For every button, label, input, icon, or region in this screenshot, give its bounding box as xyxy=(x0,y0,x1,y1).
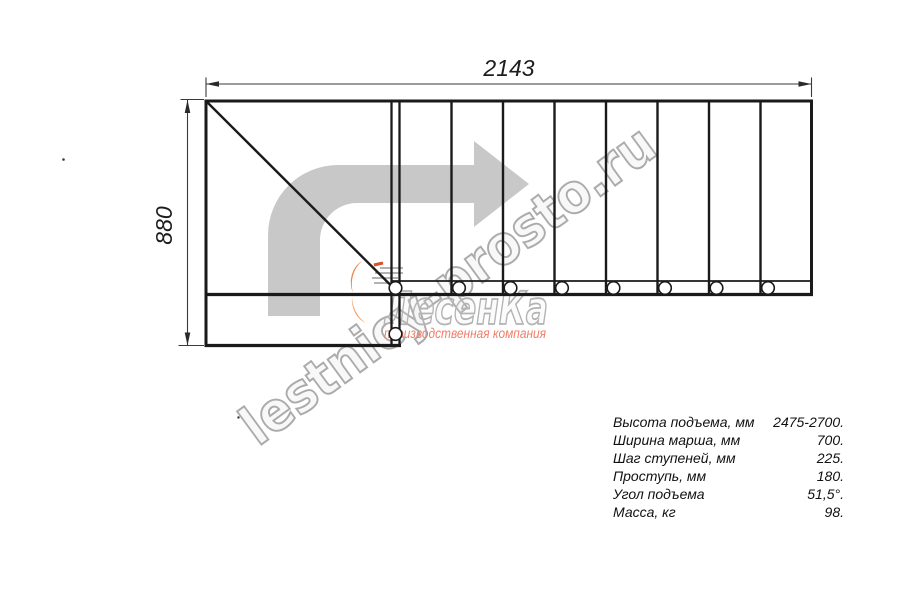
dimension-width: 2143 xyxy=(206,55,812,97)
spec-label: Ширина марша, мм xyxy=(613,431,740,449)
spec-row: Высота подъема, мм 2475-2700. xyxy=(613,413,844,431)
spec-value: 2475-2700. xyxy=(773,413,844,431)
staircase-drawing-page: lestnicy-prosto.ru ЛесенКа производствен… xyxy=(0,0,900,600)
width-dimension-label: 2143 xyxy=(482,55,534,81)
dimension-height: 880 xyxy=(151,100,204,346)
spec-value: 180. xyxy=(817,467,844,485)
spec-label: Масса, кг xyxy=(613,503,676,521)
spec-row: Масса, кг 98. xyxy=(613,503,844,521)
specs-table: Высота подъема, мм 2475-2700. Ширина мар… xyxy=(613,413,844,521)
dim-arrow-right-icon xyxy=(799,81,812,87)
height-dimension-label: 880 xyxy=(151,206,177,245)
spec-row: Шаг ступеней, мм 225. xyxy=(613,449,844,467)
spec-label: Высота подъема, мм xyxy=(613,413,755,431)
spec-label: Проступь, мм xyxy=(613,467,706,485)
spec-row: Ширина марша, мм 700. xyxy=(613,431,844,449)
spec-label: Угол подъема xyxy=(613,485,705,503)
print-specks xyxy=(62,158,240,419)
spec-value: 98. xyxy=(825,503,844,521)
spec-value: 700. xyxy=(817,431,844,449)
spec-value: 51,5°. xyxy=(807,485,844,503)
spec-value: 225. xyxy=(817,449,844,467)
spec-label: Шаг ступеней, мм xyxy=(613,449,736,467)
dim-arrow-up-icon xyxy=(185,100,191,113)
logo-company-subtitle: производственная компания xyxy=(384,326,546,341)
spec-row: Проступь, мм 180. xyxy=(613,467,844,485)
logo-flame-accent xyxy=(374,263,383,265)
dim-arrow-down-icon xyxy=(185,333,191,346)
dim-arrow-left-icon xyxy=(206,81,219,87)
spec-row: Угол подъема 51,5°. xyxy=(613,485,844,503)
logo-flame-icon xyxy=(351,261,362,293)
